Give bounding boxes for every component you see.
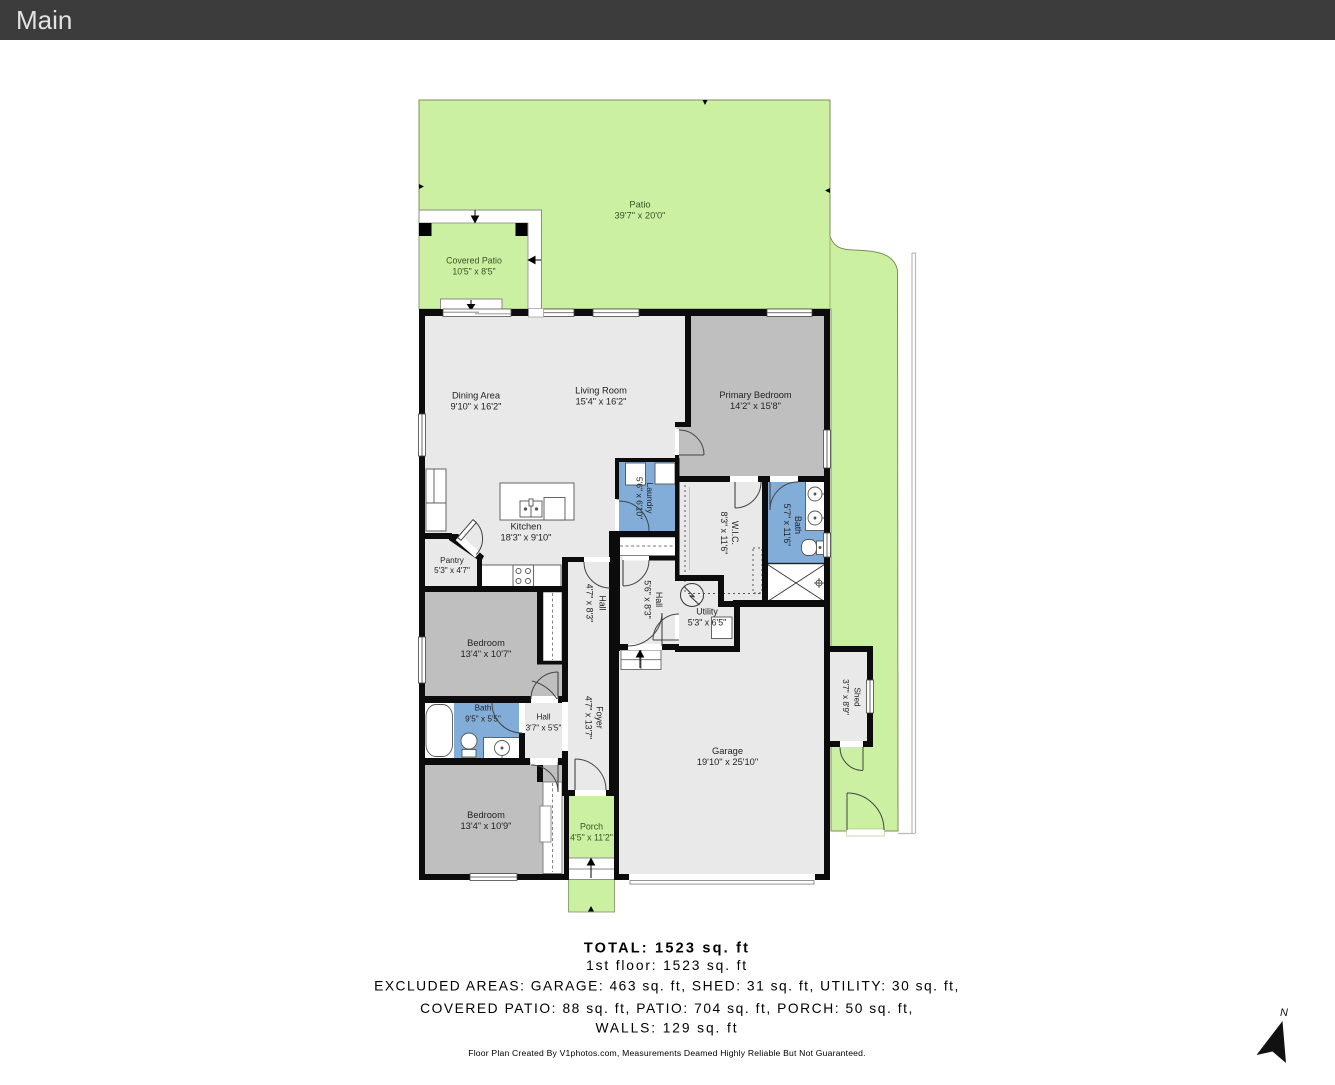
- svg-text:Bedroom: Bedroom: [467, 810, 505, 820]
- svg-text:15'4" x 16'2": 15'4" x 16'2": [576, 396, 627, 406]
- svg-text:Laundry: Laundry: [645, 482, 655, 514]
- svg-text:WALLS: 129 sq. ft: WALLS: 129 sq. ft: [596, 1021, 739, 1036]
- svg-text:4'7" x 8'3": 4'7" x 8'3": [585, 584, 595, 622]
- svg-text:Shed: Shed: [853, 687, 862, 707]
- svg-text:13'4" x 10'7": 13'4" x 10'7": [461, 649, 512, 659]
- svg-text:Porch: Porch: [580, 821, 603, 831]
- svg-text:14'2" x 15'8": 14'2" x 15'8": [730, 401, 781, 411]
- svg-text:EXCLUDED AREAS: GARAGE: 463 sq: EXCLUDED AREAS: GARAGE: 463 sq. ft, SHED…: [374, 979, 960, 994]
- svg-text:Hall: Hall: [536, 713, 550, 722]
- svg-text:19'10" x 25'10": 19'10" x 25'10": [697, 757, 758, 767]
- svg-text:Covered Patio: Covered Patio: [446, 255, 502, 265]
- svg-text:Bath: Bath: [475, 704, 492, 713]
- svg-text:TOTAL: 1523 sq. ft: TOTAL: 1523 sq. ft: [584, 941, 750, 957]
- svg-text:N: N: [1280, 1007, 1288, 1019]
- svg-text:Main: Main: [16, 5, 72, 35]
- svg-text:Living Room: Living Room: [575, 385, 627, 395]
- svg-text:5'7" x 11'6": 5'7" x 11'6": [782, 504, 792, 547]
- svg-text:Dining Area: Dining Area: [452, 390, 501, 400]
- svg-text:1st floor: 1523 sq. ft: 1st floor: 1523 sq. ft: [586, 958, 748, 973]
- svg-text:8'3" x 11'6": 8'3" x 11'6": [719, 512, 729, 555]
- svg-text:Foyer: Foyer: [595, 706, 605, 729]
- svg-text:Garage: Garage: [712, 746, 743, 756]
- svg-text:Patio: Patio: [629, 199, 650, 209]
- svg-text:Bath: Bath: [793, 516, 803, 534]
- svg-text:13'4" x 10'9": 13'4" x 10'9": [461, 821, 512, 831]
- svg-text:18'3" x 9'10": 18'3" x 9'10": [501, 532, 552, 542]
- svg-text:Utility: Utility: [696, 606, 718, 616]
- svg-text:COVERED PATIO: 88 sq. ft, PATI: COVERED PATIO: 88 sq. ft, PATIO: 704 sq.…: [420, 1001, 914, 1016]
- svg-text:Primary Bedroom: Primary Bedroom: [719, 390, 792, 400]
- svg-text:3'7" x 5'5": 3'7" x 5'5": [526, 724, 562, 733]
- svg-text:39'7" x 20'0": 39'7" x 20'0": [615, 210, 666, 220]
- svg-text:W.I.C.: W.I.C.: [730, 521, 740, 545]
- svg-text:10'5" x 8'5": 10'5" x 8'5": [452, 266, 495, 276]
- svg-text:5'3" x 4'7": 5'3" x 4'7": [434, 566, 470, 575]
- svg-text:5'6" x 8'3": 5'6" x 8'3": [642, 580, 652, 618]
- svg-text:Floor Plan Created By V1photos: Floor Plan Created By V1photos.com, Meas…: [468, 1048, 865, 1058]
- svg-text:9'5" x 5'5": 9'5" x 5'5": [465, 715, 501, 724]
- svg-text:Bedroom: Bedroom: [467, 638, 505, 648]
- svg-text:Pantry: Pantry: [440, 556, 465, 565]
- svg-text:4'7" x 13'7": 4'7" x 13'7": [584, 696, 594, 739]
- svg-text:4'5" x 11'2": 4'5" x 11'2": [570, 832, 613, 842]
- svg-text:9'10" x 16'2": 9'10" x 16'2": [451, 401, 502, 411]
- svg-text:Hall: Hall: [598, 595, 608, 610]
- svg-text:5'6" x 6'10": 5'6" x 6'10": [634, 477, 644, 519]
- svg-text:3'7" x 8'9": 3'7" x 8'9": [841, 679, 850, 715]
- svg-text:Kitchen: Kitchen: [510, 521, 541, 531]
- svg-text:Hall: Hall: [654, 592, 664, 607]
- svg-text:5'3" x 6'5": 5'3" x 6'5": [688, 617, 726, 627]
